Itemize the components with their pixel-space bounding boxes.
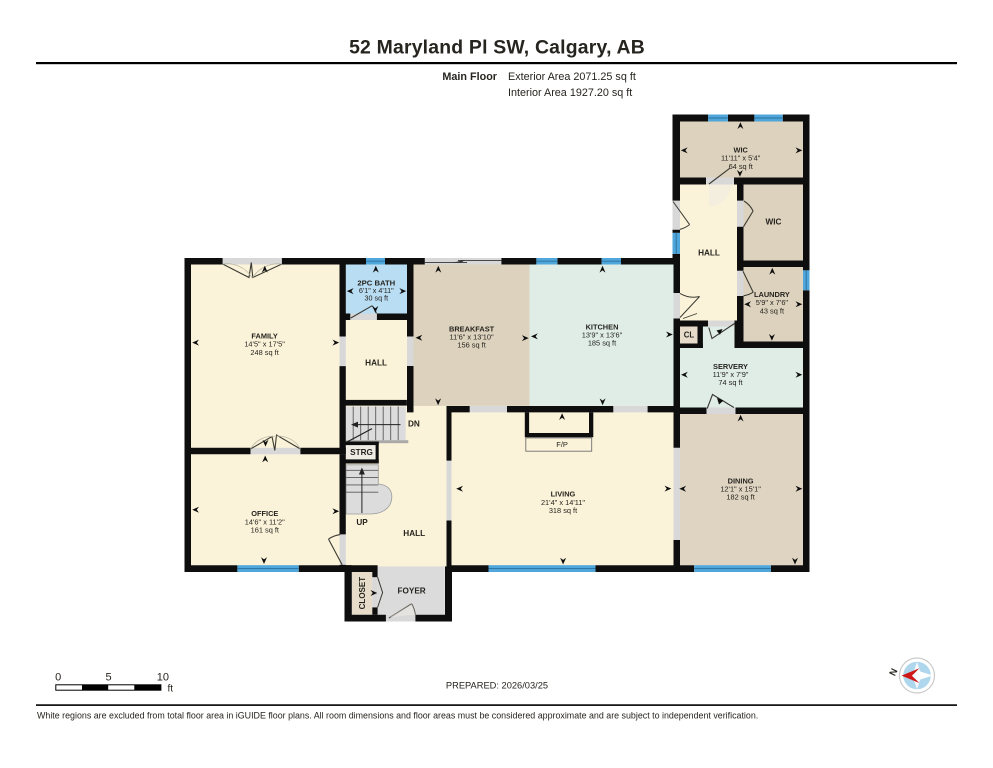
svg-text:Interior Area 1927.20 sq ft: Interior Area 1927.20 sq ft	[508, 87, 632, 99]
svg-text:CLOSET: CLOSET	[358, 577, 367, 610]
svg-text:STRG: STRG	[350, 448, 373, 457]
svg-text:64 sq ft: 64 sq ft	[729, 162, 753, 171]
svg-text:HALL: HALL	[365, 358, 387, 367]
svg-text:UP: UP	[356, 518, 368, 527]
svg-text:DN: DN	[408, 420, 420, 429]
svg-text:30 sq ft: 30 sq ft	[365, 293, 389, 302]
svg-text:74 sq ft: 74 sq ft	[718, 378, 742, 387]
svg-text:0: 0	[55, 672, 61, 684]
svg-text:156 sq ft: 156 sq ft	[457, 341, 485, 350]
svg-text:FOYER: FOYER	[397, 587, 425, 596]
svg-text:182 sq ft: 182 sq ft	[726, 493, 754, 502]
svg-text:WIC: WIC	[766, 217, 782, 226]
svg-text:161 sq ft: 161 sq ft	[251, 526, 279, 535]
svg-text:5: 5	[106, 672, 112, 684]
svg-text:43 sq ft: 43 sq ft	[760, 306, 784, 315]
svg-text:52 Maryland Pl SW, Calgary, AB: 52 Maryland Pl SW, Calgary, AB	[349, 37, 645, 59]
svg-text:Main Floor: Main Floor	[442, 71, 497, 83]
svg-text:HALL: HALL	[403, 529, 425, 538]
svg-text:PREPARED: 2026/03/25: PREPARED: 2026/03/25	[446, 681, 548, 691]
svg-text:HALL: HALL	[698, 249, 720, 258]
svg-text:318 sq ft: 318 sq ft	[549, 506, 577, 515]
svg-text:185 sq ft: 185 sq ft	[588, 339, 616, 348]
svg-text:White regions are excluded fro: White regions are excluded from total fl…	[37, 711, 758, 721]
svg-text:CL: CL	[684, 330, 695, 339]
svg-text:248 sq ft: 248 sq ft	[250, 348, 278, 357]
svg-text:10: 10	[157, 672, 169, 684]
svg-text:F/P: F/P	[556, 440, 568, 449]
svg-text:Exterior Area 2071.25 sq ft: Exterior Area 2071.25 sq ft	[508, 71, 636, 83]
svg-text:ft: ft	[168, 684, 174, 695]
